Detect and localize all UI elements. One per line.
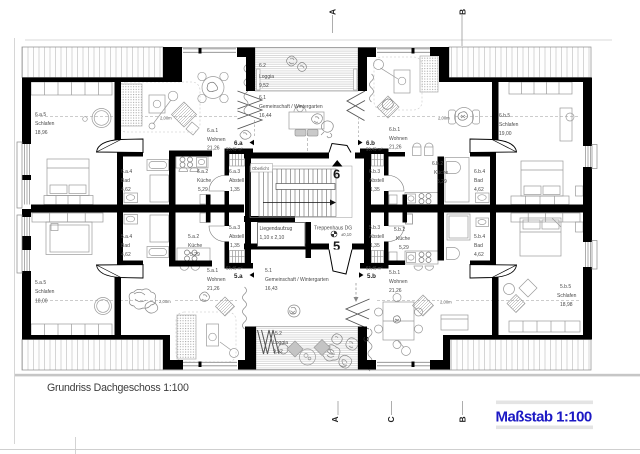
svg-text:6.a.1: 6.a.1	[207, 128, 218, 134]
svg-text:1,35: 1,35	[370, 187, 380, 193]
svg-text:Loggia: Loggia	[259, 74, 274, 80]
svg-text:19,00: 19,00	[499, 131, 512, 137]
svg-text:53,45 m²: 53,45 m²	[226, 266, 243, 271]
svg-text:A: A	[328, 9, 338, 15]
svg-text:6.a.3: 6.a.3	[229, 169, 240, 175]
svg-text:Bad: Bad	[474, 178, 483, 184]
svg-text:21,26: 21,26	[207, 146, 220, 152]
svg-text:5.b: 5.b	[367, 273, 376, 280]
svg-text:6.b.5: 6.b.5	[499, 113, 510, 119]
svg-text:Bad: Bad	[474, 243, 483, 249]
svg-text:1,35: 1,35	[370, 243, 380, 249]
svg-text:5.b.5: 5.b.5	[560, 284, 571, 290]
svg-text:4,62: 4,62	[121, 252, 131, 258]
svg-text:6.b.1: 6.b.1	[389, 127, 400, 133]
svg-text:4,62: 4,62	[121, 187, 131, 193]
svg-text:1,35: 1,35	[230, 243, 240, 249]
svg-text:Abstell: Abstell	[369, 178, 384, 184]
svg-text:9,52: 9,52	[259, 83, 269, 89]
svg-text:Liegendaufzug: Liegendaufzug	[260, 226, 293, 232]
svg-text:9,52: 9,52	[273, 349, 283, 355]
svg-text:4,62: 4,62	[474, 187, 484, 193]
svg-text:6.b.2: 6.b.2	[432, 161, 443, 167]
svg-text:5,29: 5,29	[399, 245, 409, 251]
svg-text:5,29: 5,29	[190, 252, 200, 258]
svg-text:C: C	[386, 416, 396, 422]
svg-text:1,10 x 2,10: 1,10 x 2,10	[260, 235, 285, 241]
svg-text:Wohnen: Wohnen	[207, 137, 226, 143]
svg-text:Abstell: Abstell	[229, 234, 244, 240]
svg-text:53,45 m²: 53,45 m²	[366, 266, 383, 271]
svg-text:C: C	[362, 336, 371, 342]
svg-text:6: 6	[333, 167, 340, 182]
svg-text:Gemeinschaft / Wintergarten: Gemeinschaft / Wintergarten	[265, 277, 329, 283]
svg-text:16,43: 16,43	[265, 286, 278, 292]
svg-text:5,29: 5,29	[198, 187, 208, 193]
svg-text:5,29: 5,29	[437, 179, 447, 185]
svg-text:Grundriss Dachgeschoss 1:100: Grundriss Dachgeschoss 1:100	[47, 382, 189, 394]
svg-text:6.a.2: 6.a.2	[197, 169, 208, 175]
svg-text:6.b.3: 6.b.3	[369, 169, 380, 175]
svg-text:Abstell: Abstell	[369, 234, 384, 240]
svg-text:Maßstab 1:100: Maßstab 1:100	[496, 409, 592, 426]
svg-text:Oberlicht: Oberlicht	[252, 166, 270, 171]
svg-text:2,00m: 2,00m	[440, 300, 452, 305]
svg-text:Loggia: Loggia	[273, 340, 288, 346]
svg-text:5.a: 5.a	[234, 273, 243, 280]
svg-text:Treppenhaus DG: Treppenhaus DG	[314, 226, 352, 232]
svg-text:2,00m: 2,00m	[159, 299, 171, 304]
svg-text:Schlafen: Schlafen	[499, 122, 519, 128]
svg-text:5.b.2: 5.b.2	[394, 227, 405, 233]
svg-text:Abstell: Abstell	[229, 178, 244, 184]
svg-text:Küche: Küche	[434, 170, 448, 176]
svg-text:Wohnen: Wohnen	[207, 277, 226, 283]
svg-text:5.a.5: 5.a.5	[35, 280, 46, 286]
svg-text:Bad: Bad	[121, 178, 130, 184]
svg-text:5.a.4: 5.a.4	[121, 234, 132, 240]
svg-text:5.a.3: 5.a.3	[229, 225, 240, 231]
svg-text:21,26: 21,26	[207, 286, 220, 292]
svg-text:Schlafen: Schlafen	[557, 293, 577, 299]
svg-text:6.a.5: 6.a.5	[35, 112, 46, 118]
svg-text:5.2: 5.2	[275, 331, 282, 337]
svg-text:6.1: 6.1	[259, 95, 266, 101]
svg-text:16,44: 16,44	[259, 113, 272, 119]
svg-text:18,96: 18,96	[35, 130, 48, 136]
svg-text:Schlafen: Schlafen	[35, 121, 55, 127]
svg-text:Wohnen: Wohnen	[389, 136, 408, 142]
svg-text:5.1: 5.1	[265, 268, 272, 274]
svg-text:Wohnen: Wohnen	[389, 279, 408, 285]
svg-text:5.a.2: 5.a.2	[188, 234, 199, 240]
svg-text:53,45 m²: 53,45 m²	[226, 147, 243, 152]
svg-text:21,26: 21,26	[389, 288, 402, 294]
svg-text:±0,10: ±0,10	[341, 232, 352, 237]
svg-text:2,00m: 2,00m	[160, 116, 172, 121]
svg-text:6.2: 6.2	[259, 63, 266, 69]
svg-text:53,45 m²: 53,45 m²	[366, 147, 383, 152]
svg-text:21,26: 21,26	[389, 145, 402, 151]
svg-text:Küche: Küche	[396, 236, 410, 242]
svg-text:Schlafen: Schlafen	[35, 289, 55, 295]
svg-text:18,00: 18,00	[35, 299, 48, 305]
svg-text:Küche: Küche	[197, 178, 211, 184]
svg-text:4,62: 4,62	[474, 252, 484, 258]
svg-text:Bad: Bad	[121, 243, 130, 249]
svg-text:1,35: 1,35	[230, 187, 240, 193]
svg-text:6.b.4: 6.b.4	[474, 169, 485, 175]
svg-text:A: A	[330, 416, 340, 422]
svg-text:2,00m: 2,00m	[438, 116, 450, 121]
svg-text:Küche: Küche	[188, 243, 202, 249]
svg-text:B: B	[458, 416, 468, 422]
svg-text:6.a.4: 6.a.4	[121, 169, 132, 175]
svg-text:5.a.1: 5.a.1	[207, 268, 218, 274]
svg-text:B: B	[458, 9, 468, 15]
svg-text:5.b.1: 5.b.1	[389, 270, 400, 276]
svg-text:5.b.3: 5.b.3	[369, 225, 380, 231]
svg-text:5.b.4: 5.b.4	[474, 234, 485, 240]
svg-text:Gemeinschaft / Wintergarten: Gemeinschaft / Wintergarten	[259, 104, 323, 110]
svg-text:18,98: 18,98	[560, 302, 573, 308]
